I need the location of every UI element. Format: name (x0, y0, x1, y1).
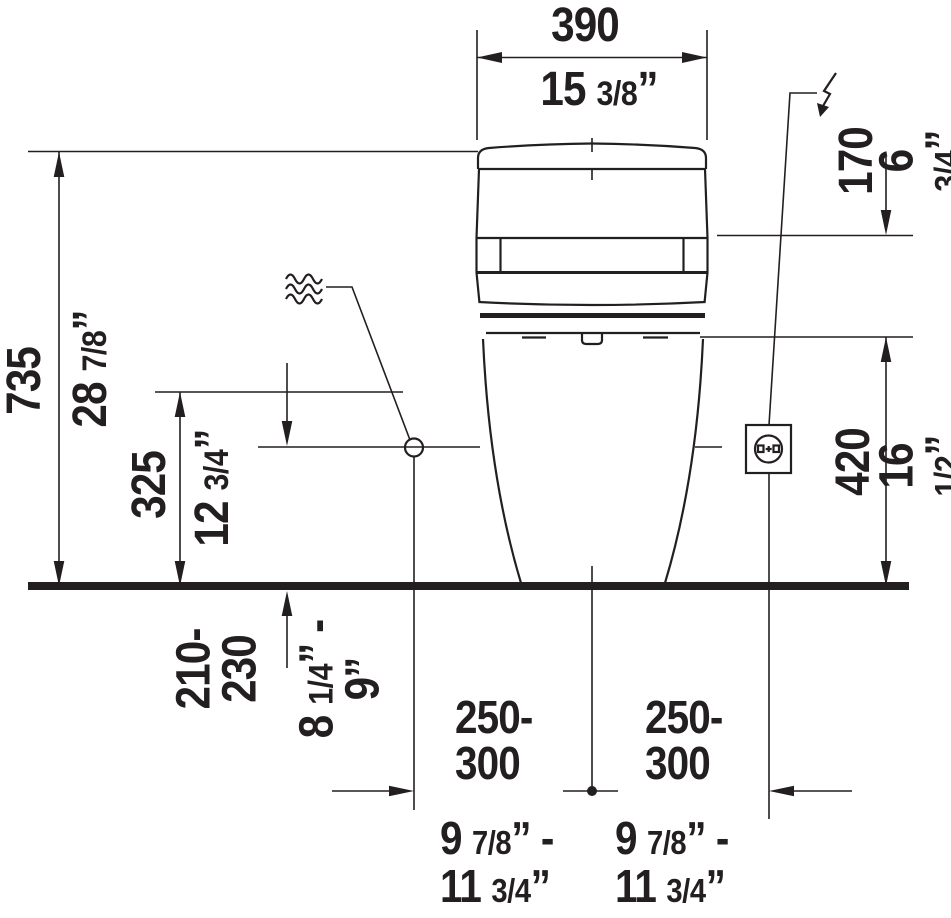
power-outlet-icon (746, 425, 791, 473)
dim-right-offset-mm: 250- 300 (645, 694, 723, 786)
lightning-bolt-icon (817, 73, 836, 117)
dim-top-width-mm: 390 (551, 3, 619, 49)
tank-side-left (477, 169, 480, 303)
toilet-outline (477, 138, 708, 583)
bowl-side-left (483, 339, 521, 583)
dim-left-offset-mm: 250- 300 (455, 694, 533, 786)
dim-right-offset-inch: 9 7/8” - 11 3/4” (615, 814, 729, 911)
dim-left-offset-inch: 9 7/8” - 11 3/4” (440, 814, 554, 911)
bowl-side-right (665, 339, 703, 583)
dim-total-height-mm: 735 (2, 347, 48, 415)
dim-total-height-inch: 28 7/8” (68, 310, 114, 427)
seat-center-tab (582, 334, 602, 344)
dim-supply-height-inch: 8 1/4” - 9” (294, 620, 385, 739)
water-supply-leader (326, 287, 410, 440)
electric-leader (769, 93, 817, 425)
dim-tank-top-offset-inch: 6 3/4” (874, 130, 951, 191)
dim-seat-height-inch: 16 1/2” (874, 435, 951, 496)
dim-supply-height-mm: 210- 230 (171, 628, 262, 709)
seat-top (479, 302, 705, 305)
electrical-supply (746, 73, 836, 473)
dim-mid-height-mm: 325 (127, 451, 173, 519)
dim-top-width-inch: 15 3/8” (540, 67, 657, 113)
tank-side-right (705, 169, 708, 303)
dim-mid-height-inch: 12 3/4” (190, 429, 236, 546)
water-supply-icon (286, 275, 322, 304)
technical-drawing-canvas: 390 15 3/8” 735 28 7/8” 325 12 3/4” 170 … (0, 0, 951, 918)
